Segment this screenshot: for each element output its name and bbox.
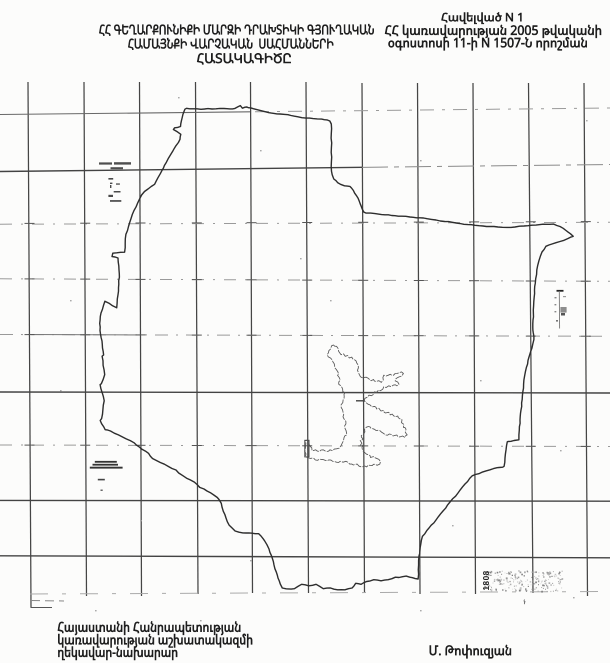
svg-text:1808: 1808	[482, 570, 491, 590]
